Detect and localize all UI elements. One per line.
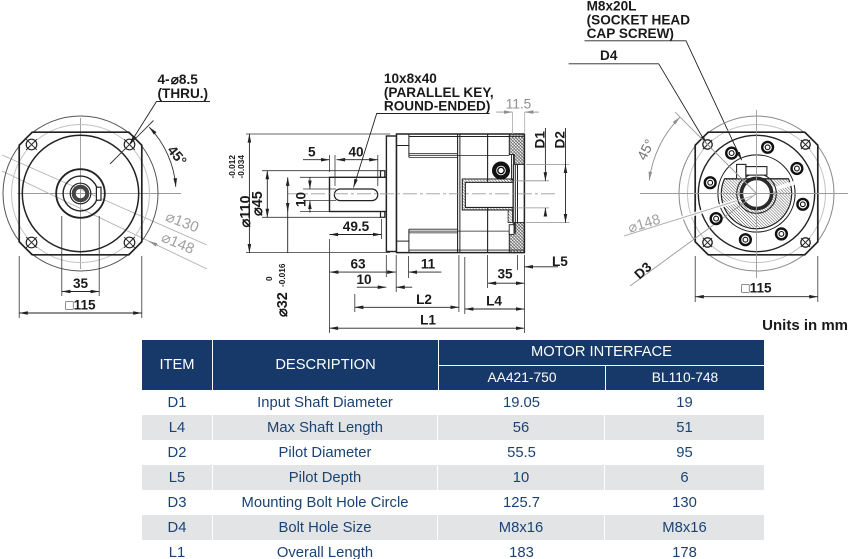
svg-text:5: 5 bbox=[308, 145, 316, 160]
svg-text:11.5: 11.5 bbox=[506, 97, 531, 112]
svg-text:10: 10 bbox=[356, 272, 371, 287]
svg-text:⌀45: ⌀45 bbox=[250, 191, 266, 216]
svg-text:(PARALLEL KEY,: (PARALLEL KEY, bbox=[384, 85, 494, 100]
svg-text:4- ⌀8.5: 4- ⌀8.5 bbox=[158, 72, 199, 87]
svg-text:40: 40 bbox=[348, 145, 363, 160]
svg-text:10x8x40: 10x8x40 bbox=[384, 71, 437, 86]
svg-text:35: 35 bbox=[73, 276, 89, 291]
svg-text:L4: L4 bbox=[486, 294, 502, 309]
svg-text:D2: D2 bbox=[553, 131, 568, 149]
svg-text:D4: D4 bbox=[600, 48, 618, 63]
svg-text:49.5: 49.5 bbox=[343, 219, 370, 234]
svg-text:-0.016: -0.016 bbox=[277, 263, 287, 287]
svg-text:□115: □115 bbox=[65, 298, 96, 313]
svg-text:L5: L5 bbox=[552, 254, 568, 269]
svg-text:35: 35 bbox=[497, 267, 513, 282]
svg-text:CAP SCREW): CAP SCREW) bbox=[587, 26, 674, 41]
svg-text:D1: D1 bbox=[533, 131, 548, 149]
svg-text:ROUND-ENDED): ROUND-ENDED) bbox=[384, 99, 490, 114]
svg-text:⌀32: ⌀32 bbox=[275, 292, 291, 317]
svg-text:Units in mm: Units in mm bbox=[762, 317, 848, 334]
svg-text:⌀148: ⌀148 bbox=[626, 212, 662, 237]
svg-text:63: 63 bbox=[350, 257, 366, 272]
svg-text:10: 10 bbox=[294, 192, 309, 207]
svg-text:-0.034: -0.034 bbox=[236, 155, 246, 179]
svg-text:L1: L1 bbox=[420, 313, 436, 328]
svg-text:L2: L2 bbox=[416, 292, 432, 307]
svg-text:(SOCKET HEAD: (SOCKET HEAD bbox=[587, 12, 691, 27]
svg-text:□115: □115 bbox=[741, 281, 772, 296]
svg-text:45°: 45° bbox=[164, 142, 190, 169]
svg-text:(THRU.): (THRU.) bbox=[158, 86, 209, 101]
svg-text:11: 11 bbox=[421, 257, 436, 272]
svg-text:D3: D3 bbox=[632, 259, 655, 282]
svg-text:0: 0 bbox=[264, 276, 274, 281]
